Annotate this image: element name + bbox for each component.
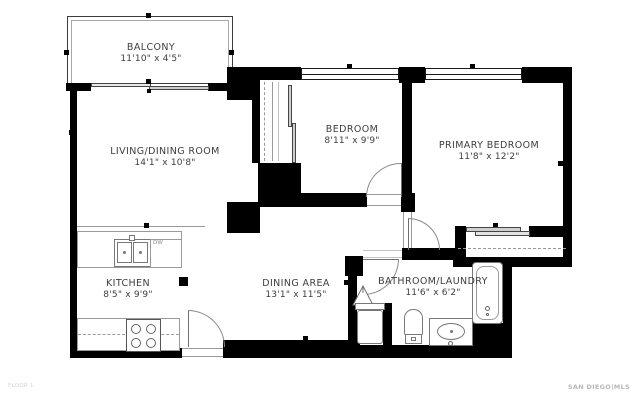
wall-segment bbox=[563, 67, 572, 267]
dimension-tick bbox=[69, 130, 75, 135]
dimension-tick bbox=[147, 89, 151, 93]
entry-door-swing-arc bbox=[188, 310, 225, 347]
window-mullion bbox=[302, 74, 398, 75]
room-name: BALCONY bbox=[127, 42, 175, 53]
washer bbox=[357, 310, 383, 344]
bedroom-door-swing-arc bbox=[366, 163, 401, 197]
stove bbox=[126, 319, 161, 352]
sink-drain bbox=[123, 251, 126, 254]
floor-number-text: FLOOR 1 bbox=[8, 383, 34, 389]
door-opening bbox=[182, 348, 223, 357]
room-label-bedroom: BEDROOM 8'11" x 9'9" bbox=[324, 124, 379, 147]
closet-sliding-door-panel bbox=[475, 231, 530, 236]
room-name: LIVING/DINING ROOM bbox=[110, 146, 220, 157]
toilet-bowl bbox=[404, 309, 423, 336]
wall-segment bbox=[258, 163, 301, 207]
wall-segment bbox=[227, 67, 301, 80]
wall-segment bbox=[529, 226, 563, 237]
room-label-dining: DINING AREA 13'1" x 11'5" bbox=[262, 278, 330, 301]
mls-watermark: SAN DIEGO|MLS bbox=[568, 383, 630, 391]
room-label-balcony: BALCONY 11'10" x 4'5" bbox=[120, 42, 181, 65]
room-label-living: LIVING/DINING ROOM 14'1" x 10'8" bbox=[110, 146, 220, 169]
room-dimensions: 11'8" x 12'2" bbox=[439, 152, 539, 163]
wall-segment bbox=[455, 226, 466, 258]
room-name: BEDROOM bbox=[326, 124, 378, 135]
room-name: BATHROOM/LAUNDRY bbox=[378, 276, 488, 287]
window bbox=[425, 68, 522, 80]
dishwasher-label: DW bbox=[153, 240, 163, 246]
stove-burner bbox=[131, 338, 141, 348]
tub-drain bbox=[486, 313, 489, 316]
wall-segment bbox=[402, 80, 412, 193]
toilet-flush bbox=[411, 337, 416, 341]
sink-drain bbox=[450, 330, 453, 333]
room-name: KITCHEN bbox=[106, 278, 150, 289]
closet-sliding-door-panel bbox=[292, 123, 296, 163]
dimension-tick bbox=[144, 223, 149, 228]
wall-stub bbox=[179, 277, 188, 286]
wall-segment bbox=[252, 100, 260, 163]
wall-segment bbox=[227, 80, 260, 100]
room-dimensions: 13'1" x 11'5" bbox=[262, 290, 330, 301]
wall-segment bbox=[348, 345, 512, 358]
room-dimensions: 11'6" x 6'2" bbox=[378, 288, 488, 299]
closet-sliding-door-panel bbox=[288, 85, 292, 127]
sliding-door-panel bbox=[91, 83, 151, 87]
dimension-tick bbox=[146, 79, 151, 84]
wall-segment bbox=[297, 193, 367, 207]
room-label-bathroom: BATHROOM/LAUNDRY 11'6" x 6'2" bbox=[378, 276, 488, 299]
kitchen-divider-line bbox=[77, 226, 205, 227]
window-mullion bbox=[426, 74, 521, 75]
dimension-tick bbox=[558, 161, 564, 166]
wall-segment bbox=[401, 193, 415, 212]
stove-burner bbox=[146, 338, 156, 348]
room-name: PRIMARY BEDROOM bbox=[439, 140, 539, 151]
wall-segment bbox=[70, 83, 77, 358]
dimension-tick bbox=[493, 223, 498, 227]
closet-shelf-line bbox=[272, 82, 273, 161]
room-label-primary: PRIMARY BEDROOM 11'8" x 12'2" bbox=[439, 140, 539, 163]
room-label-kitchen: KITCHEN 8'5" x 9'9" bbox=[103, 278, 152, 301]
wall-segment bbox=[522, 67, 572, 83]
sink-drain bbox=[139, 251, 142, 254]
vanity-knob bbox=[448, 341, 453, 346]
door-opening bbox=[363, 250, 402, 258]
sink-faucet bbox=[129, 235, 135, 241]
closet-rod-dashed-line bbox=[458, 248, 566, 249]
wall-segment bbox=[399, 67, 425, 83]
bedroom-door-leaf bbox=[401, 163, 402, 197]
room-dimensions: 8'11" x 9'9" bbox=[324, 136, 379, 147]
stove-burner bbox=[146, 324, 156, 334]
dimension-tick bbox=[229, 50, 234, 55]
dimension-tick bbox=[470, 64, 475, 68]
room-dimensions: 11'10" x 4'5" bbox=[120, 54, 181, 65]
dimension-tick bbox=[146, 13, 151, 18]
wall-segment bbox=[227, 202, 260, 233]
window bbox=[301, 68, 399, 80]
dimension-tick bbox=[303, 336, 308, 341]
primary-door-swing-arc bbox=[408, 218, 440, 250]
sliding-door-panel bbox=[149, 86, 209, 90]
closet-shelf-line bbox=[278, 82, 279, 161]
tub-drain bbox=[485, 306, 490, 311]
room-dimensions: 8'5" x 9'9" bbox=[103, 290, 152, 301]
wall-segment bbox=[223, 340, 360, 358]
laundry-shelf bbox=[355, 303, 385, 310]
room-name: DINING AREA bbox=[262, 278, 330, 289]
wall-segment bbox=[453, 257, 572, 267]
room-dimensions: 14'1" x 10'8" bbox=[110, 158, 220, 169]
dimension-tick bbox=[347, 64, 352, 68]
stove-burner bbox=[131, 324, 141, 334]
closet-rod-dashed-line bbox=[264, 82, 265, 161]
floor-plan: DW BALCONY 11'10" x 4'5" LIVING/DINING R… bbox=[0, 0, 640, 400]
dimension-tick bbox=[344, 280, 349, 285]
dimension-tick bbox=[64, 50, 69, 55]
